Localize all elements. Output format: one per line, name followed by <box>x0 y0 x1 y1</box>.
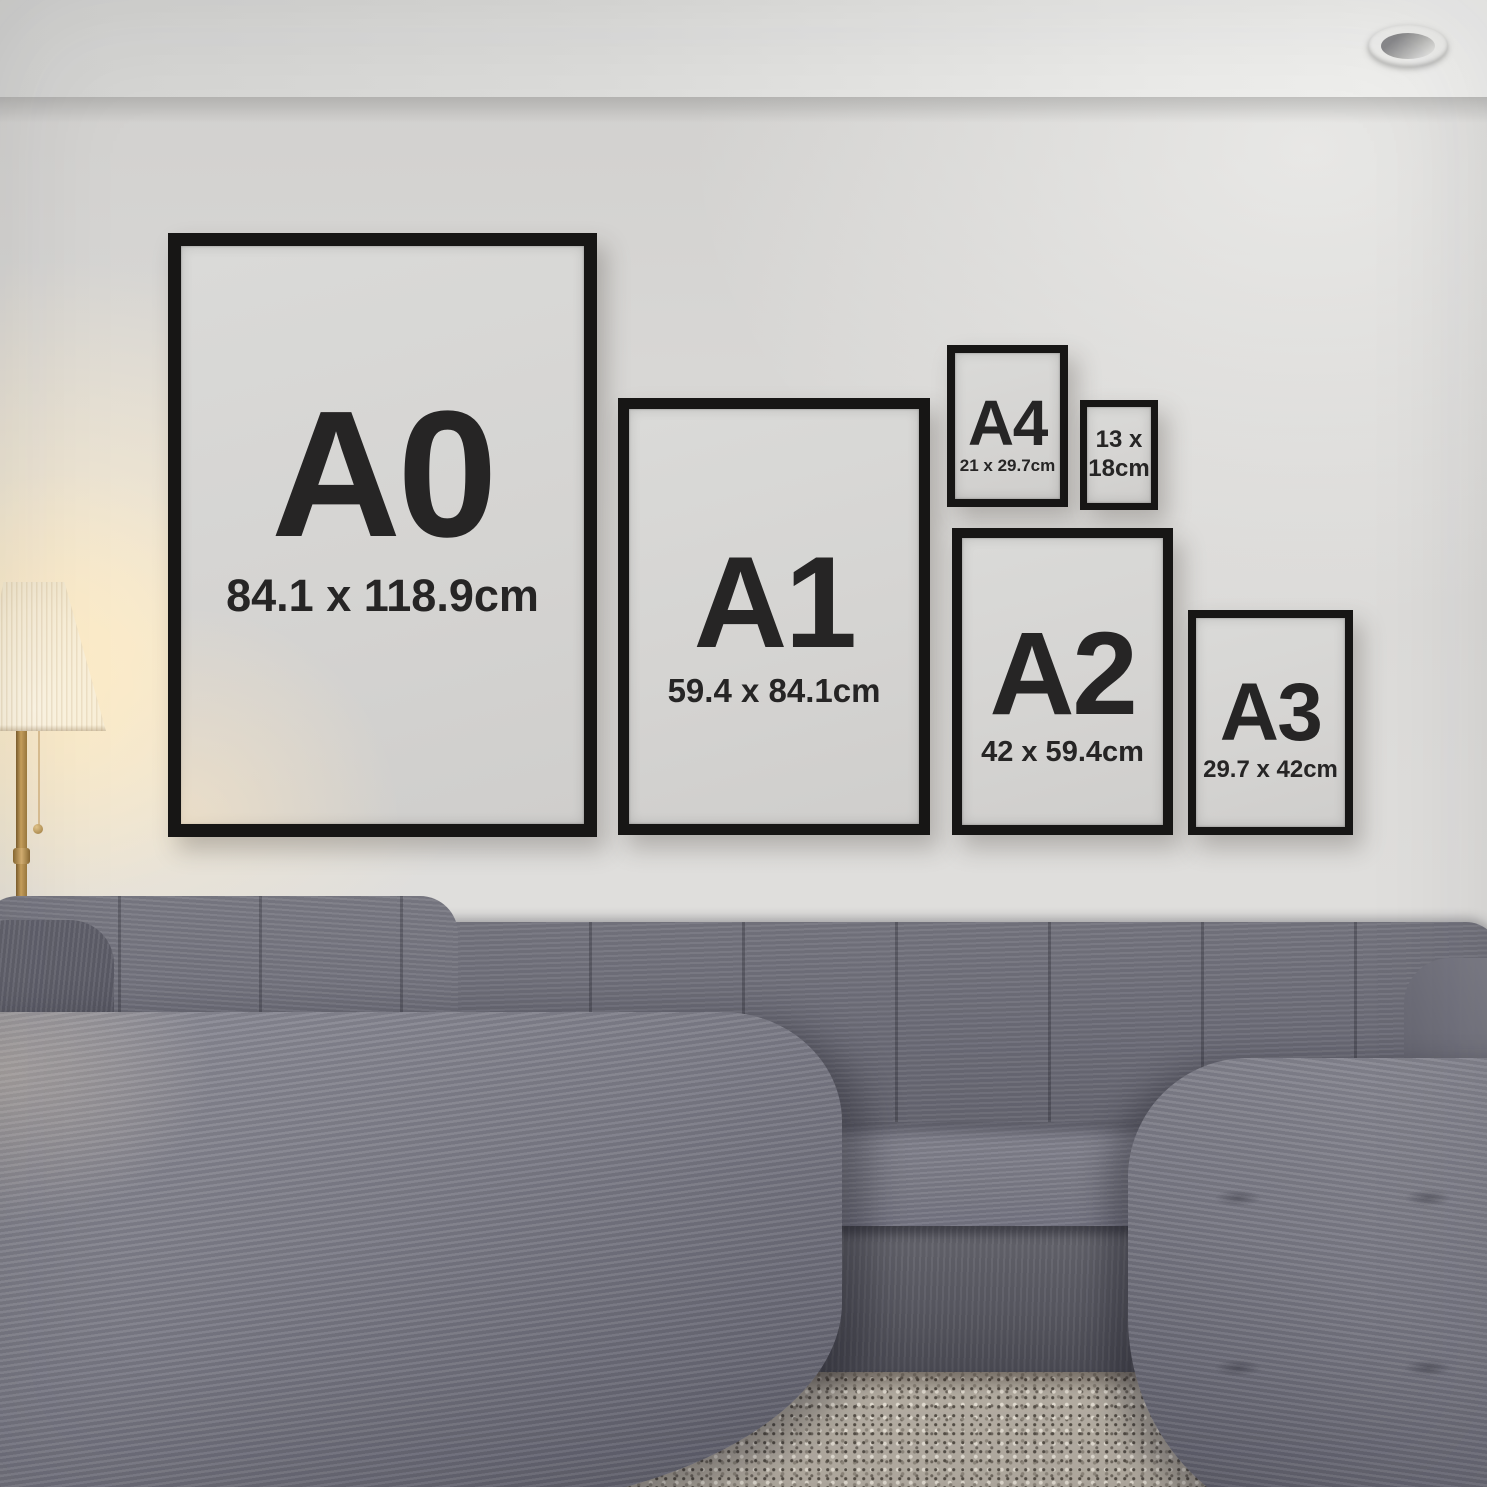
poster-size-label: A2 <box>981 620 1144 729</box>
frame-a1: A1 59.4 x 84.1cm <box>618 398 930 835</box>
poster-a0: A0 84.1 x 118.9cm <box>181 246 584 824</box>
frame-a4: A4 21 x 29.7cm <box>947 345 1068 507</box>
poster-size-label: A0 <box>226 392 539 558</box>
poster-size-dimensions-line1: 13 x <box>1088 426 1149 455</box>
poster-size-dimensions: 21 x 29.7cm <box>960 456 1055 476</box>
lamp-pole <box>16 727 27 943</box>
shag-rug <box>150 1368 1487 1487</box>
poster-a4: A4 21 x 29.7cm <box>955 353 1060 499</box>
poster-size-dimensions: 29.7 x 42cm <box>1203 756 1338 784</box>
poster-size-label: A1 <box>668 543 881 663</box>
poster-size-dimensions: 84.1 x 118.9cm <box>226 570 539 622</box>
living-room-scene: A0 84.1 x 118.9cm A1 59.4 x 84.1cm A4 21… <box>0 0 1487 1487</box>
recessed-ceiling-light <box>1368 25 1448 67</box>
recessed-light-bulb <box>1381 33 1435 59</box>
poster-size-label: A3 <box>1203 675 1338 750</box>
frame-a3: A3 29.7 x 42cm <box>1188 610 1353 835</box>
frame-a2: A2 42 x 59.4cm <box>952 528 1173 835</box>
frame-a0: A0 84.1 x 118.9cm <box>168 233 597 837</box>
poster-size-dimensions: 59.4 x 84.1cm <box>668 672 881 710</box>
lamp-pole-collar <box>13 848 30 864</box>
poster-a2: A2 42 x 59.4cm <box>962 538 1163 825</box>
poster-size-dimensions-line2: 18cm <box>1088 455 1149 484</box>
poster-size-label: A4 <box>960 394 1055 453</box>
frame-13x18: 13 x 18cm <box>1080 400 1158 510</box>
ceiling <box>0 0 1487 97</box>
lamp-pull-chain-ball <box>33 824 43 834</box>
poster-a3: A3 29.7 x 42cm <box>1196 618 1345 827</box>
poster-a1: A1 59.4 x 84.1cm <box>629 409 919 824</box>
poster-size-dimensions: 42 x 59.4cm <box>981 736 1144 769</box>
lamp-pull-chain <box>38 730 40 826</box>
poster-13x18: 13 x 18cm <box>1087 407 1151 503</box>
